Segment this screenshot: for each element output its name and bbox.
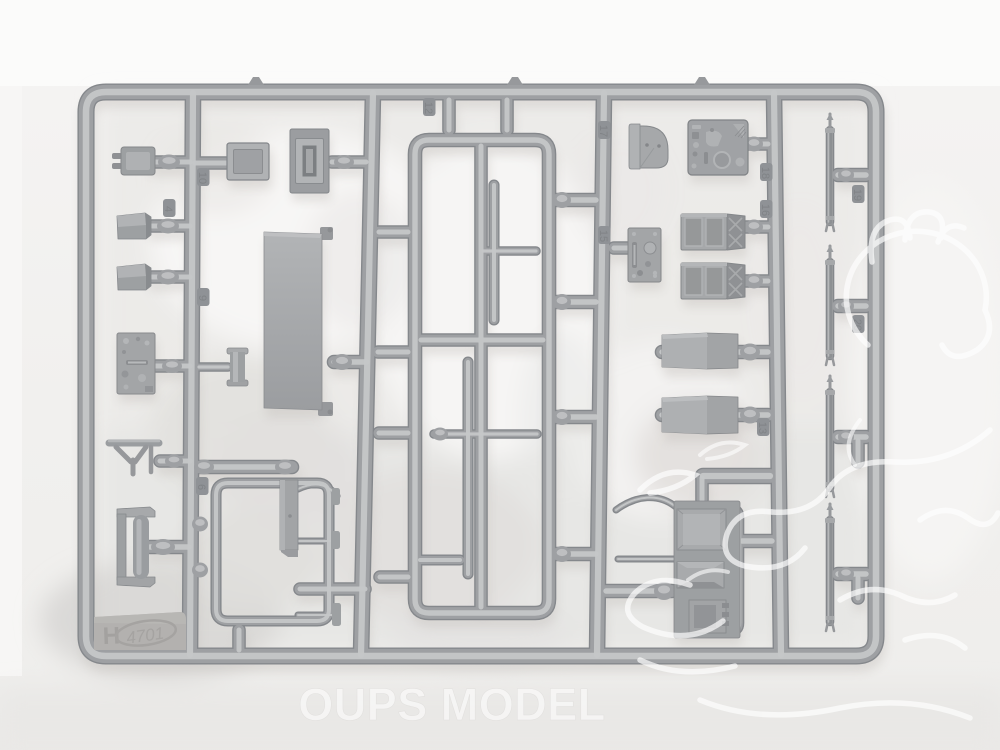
- svg-text:4: 4: [162, 206, 174, 212]
- svg-text:13: 13: [756, 422, 768, 434]
- svg-text:6: 6: [195, 484, 207, 490]
- svg-text:12: 12: [422, 102, 434, 114]
- svg-text:19: 19: [851, 189, 863, 201]
- svg-text:OUPS MODEL: OUPS MODEL: [298, 679, 606, 730]
- svg-text:16: 16: [759, 204, 771, 216]
- svg-text:15: 15: [597, 230, 609, 242]
- svg-text:H: H: [102, 622, 120, 650]
- svg-text:9: 9: [196, 295, 208, 301]
- svg-text:17: 17: [597, 125, 609, 137]
- svg-text:10: 10: [196, 172, 208, 184]
- svg-text:18: 18: [759, 167, 771, 179]
